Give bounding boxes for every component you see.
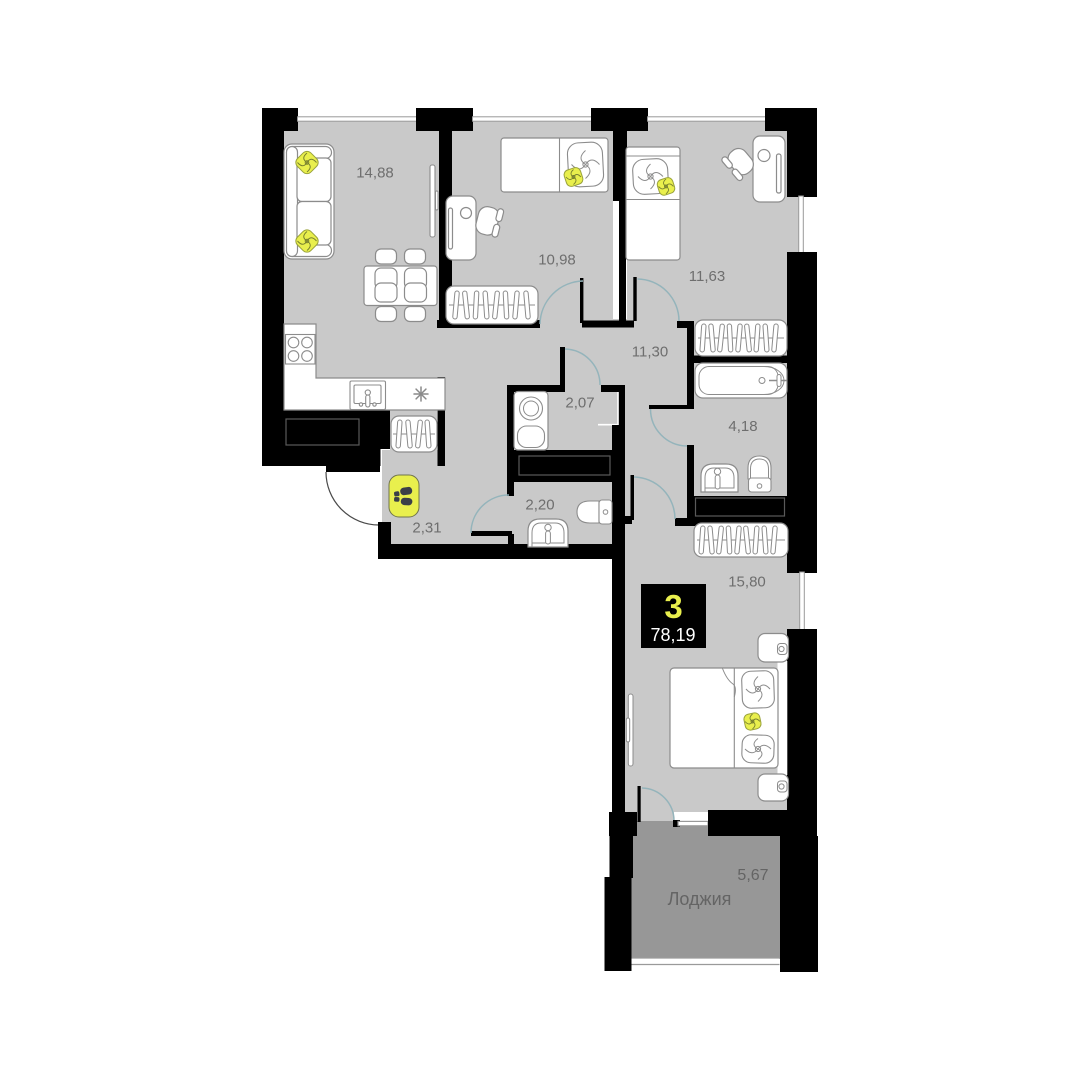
svg-text:78,19: 78,19: [650, 625, 695, 645]
svg-text:11,63: 11,63: [689, 268, 725, 285]
svg-text:15,80: 15,80: [728, 574, 766, 591]
svg-text:5,67: 5,67: [737, 867, 768, 884]
svg-text:11,30: 11,30: [632, 344, 668, 361]
svg-text:10,98: 10,98: [538, 252, 576, 269]
svg-text:2,31: 2,31: [412, 520, 441, 537]
svg-text:Лоджия: Лоджия: [668, 889, 732, 909]
svg-text:2,07: 2,07: [565, 395, 594, 412]
svg-text:3: 3: [664, 588, 682, 625]
svg-text:14,88: 14,88: [356, 165, 394, 182]
svg-text:4,18: 4,18: [728, 418, 757, 435]
svg-text:2,20: 2,20: [525, 497, 554, 514]
